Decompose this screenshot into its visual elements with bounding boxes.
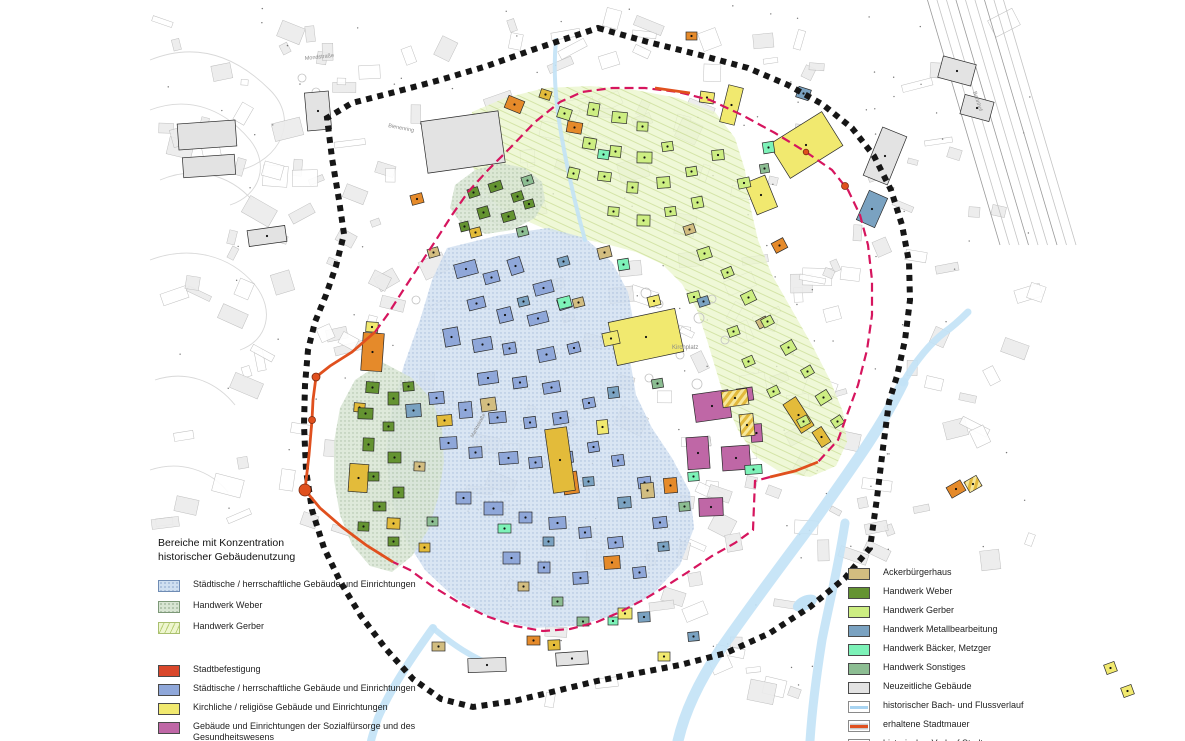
legend-label: historischer Bach- und Flussverlauf (883, 700, 1024, 711)
legend-label: Städtische / herrschaftliche Gebäude und… (193, 683, 416, 694)
legend-item: Handwerk Metallbearbeitung (848, 624, 1178, 637)
legend-item: Handwerk Gerber (848, 605, 1178, 618)
legend-item: Gebäude und Einrichtungen der Sozialfürs… (158, 721, 458, 741)
building-nz (421, 111, 505, 173)
legend-item: Stadtbefestigung (158, 664, 458, 677)
legend-swatch (848, 625, 870, 637)
legend-swatch (848, 701, 870, 713)
legend-right: AckerbürgerhausHandwerk WeberHandwerk Ge… (848, 567, 1178, 741)
legend-title-line2: historischer Gebäudenutzung (158, 551, 458, 565)
legend-item: Handwerk Bäcker, Metzger (848, 643, 1178, 656)
legend-label: Stadtbefestigung (193, 664, 261, 675)
legend-label: Ackerbürgerhaus (883, 567, 952, 578)
legend-swatch (848, 720, 870, 732)
legend-label: Handwerk Gerber (193, 621, 264, 632)
legend-item: Städtische / herrschaftliche Gebäude und… (158, 579, 458, 592)
page-root: KirchplatzBienenringMondstraßeBahnhofMar… (0, 0, 1185, 741)
contour-lines (150, 52, 284, 492)
legend-item: erhaltene Stadtmauer (848, 719, 1178, 732)
legend-item: Handwerk Gerber (158, 621, 458, 634)
legend-label: Handwerk Weber (883, 586, 952, 597)
wall-tower (312, 373, 320, 381)
legend-swatch (158, 580, 180, 592)
building-nz (182, 154, 235, 178)
legend-label: erhaltene Stadtmauer (883, 719, 970, 730)
legend-label: Neuzeitliche Gebäude (883, 681, 972, 692)
legend-label: Handwerk Bäcker, Metzger (883, 643, 991, 654)
legend-item: Handwerk Sonstiges (848, 662, 1178, 675)
legend-swatch (158, 622, 180, 634)
wall-tower (309, 417, 316, 424)
legend-label: Handwerk Metallbearbeitung (883, 624, 998, 635)
legend-swatch (158, 722, 180, 734)
legend-swatch (848, 682, 870, 694)
legend-title: Bereiche mit Konzentration historischer … (158, 537, 458, 564)
legend-swatch (158, 665, 180, 677)
legend-label: Handwerk Weber (193, 600, 262, 611)
building-nz (177, 120, 237, 150)
wall-tower (803, 149, 809, 155)
legend-swatch (158, 684, 180, 696)
legend-label: Gebäude und Einrichtungen der Sozialfürs… (193, 721, 423, 741)
legend-spacer (158, 642, 458, 664)
legend-items: AckerbürgerhausHandwerk WeberHandwerk Ge… (848, 567, 1178, 741)
legend-item: Ackerbürgerhaus (848, 567, 1178, 580)
legend-item: Neuzeitliche Gebäude (848, 681, 1178, 694)
legend-swatch (848, 606, 870, 618)
legend-left: Bereiche mit Konzentration historischer … (158, 537, 458, 741)
legend-swatch (848, 644, 870, 656)
legend-swatch (848, 663, 870, 675)
map-label: Bienenring (388, 123, 415, 134)
legend-label: Handwerk Sonstiges (883, 662, 966, 673)
legend-swatch (158, 601, 180, 613)
legend-item: historischer Bach- und Flussverlauf (848, 700, 1178, 713)
legend-item: Städtische / herrschaftliche Gebäude und… (158, 683, 458, 696)
legend-swatch (158, 703, 180, 715)
map-label: Kirchplatz (672, 345, 698, 351)
legend-zone-items: Städtische / herrschaftliche Gebäude und… (158, 579, 458, 634)
wall-tower (299, 484, 311, 496)
legend-swatch (848, 568, 870, 580)
legend-title-line1: Bereiche mit Konzentration (158, 537, 458, 551)
legend-label: Kirchliche / religiöse Gebäude und Einri… (193, 702, 388, 713)
legend-item: Kirchliche / religiöse Gebäude und Einri… (158, 702, 458, 715)
legend-swatch (848, 587, 870, 599)
legend-label: Handwerk Gerber (883, 605, 954, 616)
legend-solid-items: StadtbefestigungStädtische / herrschaftl… (158, 664, 458, 741)
legend-item: Handwerk Weber (848, 586, 1178, 599)
wall-tower (842, 183, 849, 190)
legend-item: Handwerk Weber (158, 600, 458, 613)
legend-label: Städtische / herrschaftliche Gebäude und… (193, 579, 416, 590)
